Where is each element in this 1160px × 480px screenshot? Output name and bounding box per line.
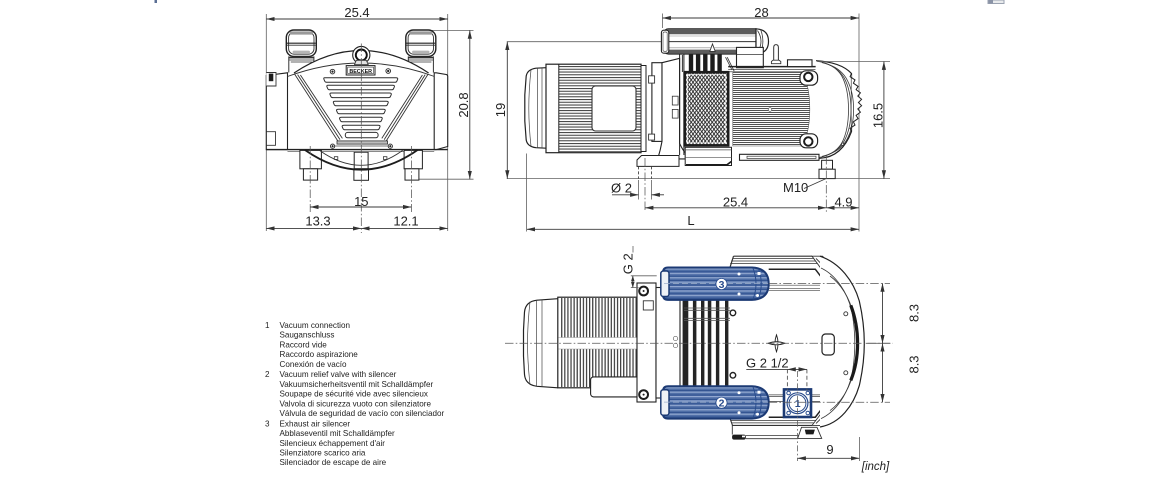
svg-text:1: 1 bbox=[265, 321, 270, 330]
svg-text:Exhaust air silencer: Exhaust air silencer bbox=[280, 419, 351, 428]
svg-text:M10: M10 bbox=[783, 180, 808, 195]
svg-text:2: 2 bbox=[719, 398, 725, 410]
svg-text:Conexión de vacío: Conexión de vacío bbox=[280, 360, 348, 369]
svg-text:4.9: 4.9 bbox=[834, 194, 852, 209]
svg-text:Sauganschluss: Sauganschluss bbox=[280, 331, 335, 340]
svg-text:3: 3 bbox=[265, 419, 270, 428]
svg-text:Vacuum relief valve with silen: Vacuum relief valve with silencer bbox=[280, 370, 397, 379]
svg-text:8.3: 8.3 bbox=[907, 304, 922, 322]
svg-text:25.4: 25.4 bbox=[723, 194, 748, 209]
svg-text:Raccord vide: Raccord vide bbox=[280, 340, 328, 349]
svg-text:Válvula de seguridad de vacío: Válvula de seguridad de vacío con silenc… bbox=[280, 409, 445, 418]
svg-text:Vakuumsicherheitsventil mit Sc: Vakuumsicherheitsventil mit Schalldämpfe… bbox=[280, 380, 434, 389]
svg-text:15: 15 bbox=[354, 194, 368, 209]
svg-text:Silenziatore scarico aria: Silenziatore scarico aria bbox=[280, 449, 366, 458]
svg-text:G 2 1/2: G 2 1/2 bbox=[746, 355, 789, 370]
svg-text:19: 19 bbox=[493, 103, 508, 117]
svg-text:2: 2 bbox=[265, 370, 270, 379]
svg-text:Vacuum connection: Vacuum connection bbox=[280, 321, 351, 330]
svg-text:Raccordo aspirazione: Raccordo aspirazione bbox=[280, 350, 359, 359]
svg-text:[inch]: [inch] bbox=[861, 461, 890, 473]
svg-text:25.4: 25.4 bbox=[344, 5, 369, 20]
svg-text:16.5: 16.5 bbox=[870, 103, 885, 128]
svg-text:G 2: G 2 bbox=[620, 253, 635, 274]
svg-text:Soupape de sécurité vide avec: Soupape de sécurité vide avec silencieux bbox=[280, 390, 428, 399]
svg-text:3: 3 bbox=[719, 279, 725, 291]
svg-text:Abblaseventil mit Schalldämpfe: Abblaseventil mit Schalldämpfer bbox=[280, 429, 395, 438]
svg-text:BECKER: BECKER bbox=[349, 69, 372, 75]
svg-text:12.1: 12.1 bbox=[393, 214, 418, 229]
svg-text:13.3: 13.3 bbox=[305, 214, 330, 229]
svg-text:Ø 2: Ø 2 bbox=[611, 181, 632, 196]
svg-text:L: L bbox=[687, 213, 694, 228]
svg-text:Valvola di sicurezza vuoto con: Valvola di sicurezza vuoto con silenziat… bbox=[280, 399, 432, 408]
svg-text:28: 28 bbox=[754, 5, 768, 20]
svg-text:8.3: 8.3 bbox=[907, 355, 922, 373]
svg-text:9: 9 bbox=[826, 442, 833, 457]
svg-text:20.8: 20.8 bbox=[456, 92, 471, 117]
svg-text:Silenciador de escape de aire: Silenciador de escape de aire bbox=[280, 458, 387, 467]
svg-text:Silencieux échappement d'air: Silencieux échappement d'air bbox=[280, 439, 386, 448]
